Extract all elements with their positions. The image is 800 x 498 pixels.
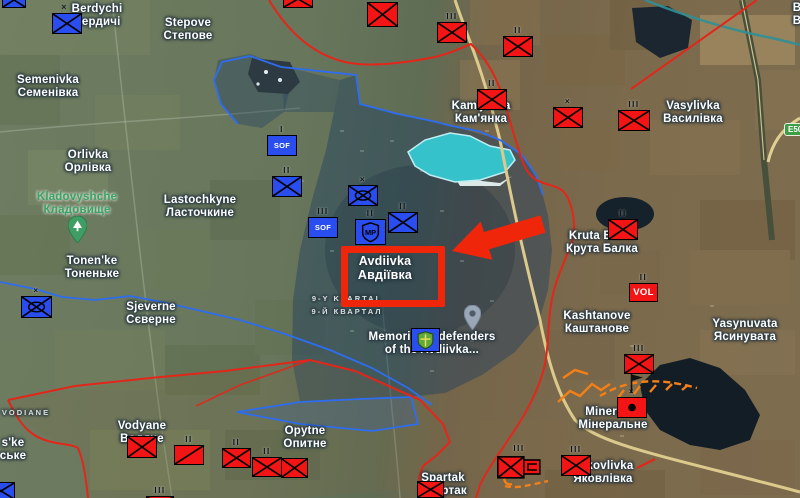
avdiivka-highlight-box [341, 246, 445, 307]
map-canvas[interactable]: BerdychiБердичі×StepoveСтеповеSemenivkaС… [0, 0, 800, 498]
e50-road-shield: E50 [784, 123, 800, 136]
